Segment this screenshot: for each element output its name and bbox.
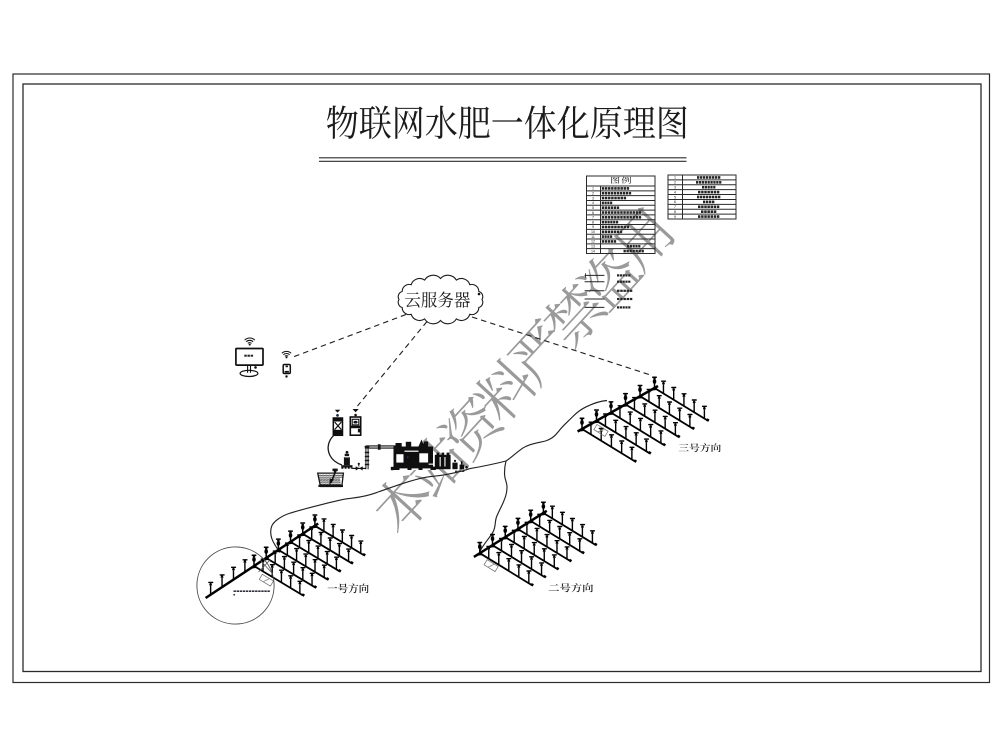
- svg-text:5: 5: [592, 206, 594, 210]
- svg-text:6: 6: [674, 200, 676, 204]
- svg-text:10: 10: [591, 230, 595, 234]
- svg-text:1: 1: [592, 187, 594, 191]
- svg-text:7: 7: [592, 216, 594, 220]
- svg-text:14: 14: [591, 249, 595, 253]
- svg-text:13: 13: [591, 245, 595, 249]
- svg-text:9: 9: [592, 225, 594, 229]
- svg-text:6: 6: [592, 211, 594, 215]
- svg-text:8: 8: [674, 210, 676, 214]
- svg-text:5: 5: [674, 195, 676, 199]
- svg-text:2: 2: [674, 181, 676, 185]
- svg-text:12: 12: [591, 240, 595, 244]
- svg-text:3: 3: [592, 196, 594, 200]
- svg-text:3: 3: [674, 185, 676, 189]
- svg-text:8: 8: [592, 220, 594, 224]
- svg-text:4: 4: [674, 190, 676, 194]
- svg-text:1: 1: [674, 176, 676, 180]
- svg-text:7: 7: [674, 205, 676, 209]
- svg-text:11: 11: [591, 235, 595, 239]
- svg-text:4: 4: [592, 201, 594, 205]
- svg-text:2: 2: [592, 191, 594, 195]
- svg-text:9: 9: [674, 215, 676, 219]
